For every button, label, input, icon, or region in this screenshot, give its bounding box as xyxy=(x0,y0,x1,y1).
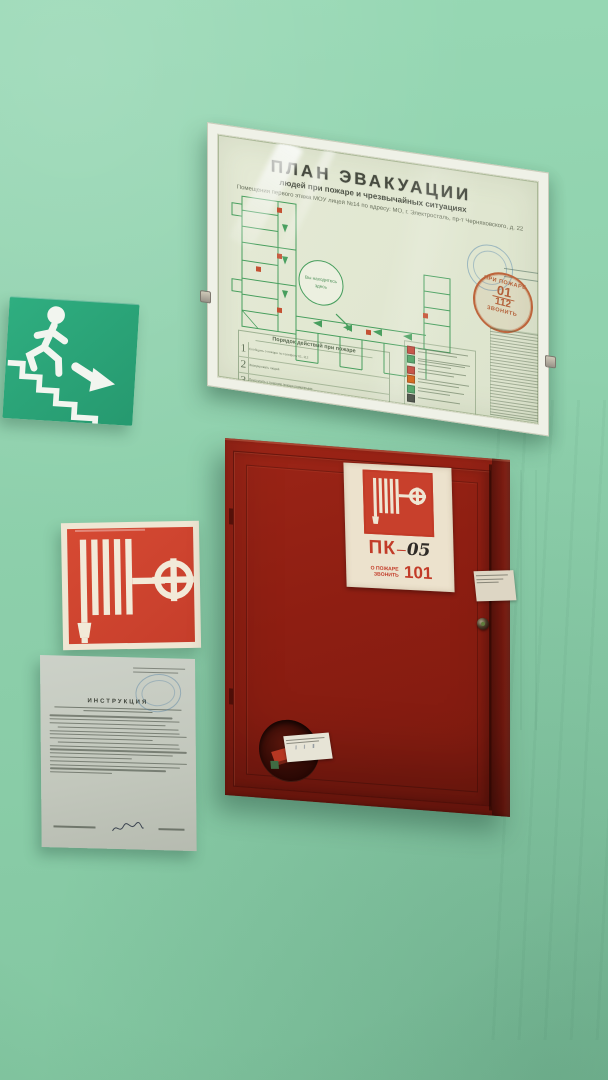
cabinet-hinge xyxy=(229,688,233,704)
pk-designation: ПК – 05 xyxy=(350,536,449,563)
direction-symbol-icon xyxy=(407,384,415,393)
phone-symbol-icon xyxy=(407,375,415,384)
handwritten-signature xyxy=(110,821,144,836)
cabinet-hinge xyxy=(229,508,233,524)
wall-drips xyxy=(514,470,544,730)
plan-notes-block xyxy=(490,327,538,423)
paper-seal xyxy=(474,570,517,601)
row-number: 3 xyxy=(239,373,249,389)
inspection-tag xyxy=(283,733,333,763)
you-are-here-circle: Вы находитесь здесь xyxy=(299,258,343,308)
fire-hose-reel-icon xyxy=(67,527,195,644)
pk-phone-number: 101 xyxy=(404,563,433,584)
evacuation-plan-board: ПЛАН ЭВАКУАЦИИ людей при пожаре и чрезвы… xyxy=(207,122,549,437)
fire-hose-cabinet: ПК – 05 О ПОЖАРЕ ЗВОНИТЬ 101 xyxy=(225,438,510,817)
hose-symbol-icon xyxy=(407,365,415,374)
cabinet-lock xyxy=(477,617,489,630)
exit-down-stairs-sign xyxy=(2,296,139,426)
document-body xyxy=(50,715,188,777)
text-line xyxy=(477,582,499,584)
photo-canvas: ПЛАН ЭВАКУАЦИИ людей при пожаре и чрезвы… xyxy=(0,0,608,1080)
plan-corner-mark xyxy=(226,382,234,391)
text-line xyxy=(476,575,508,577)
signature-caption xyxy=(53,826,95,828)
signature-date xyxy=(158,829,184,831)
fire-hose-sign xyxy=(61,521,201,650)
down-right-arrow-icon xyxy=(74,367,116,393)
text-line xyxy=(476,578,503,580)
exit-sign-pictogram xyxy=(2,297,139,426)
frame-clip-right xyxy=(545,355,556,369)
alarm-symbol-icon xyxy=(407,394,415,403)
row-number: 2 xyxy=(239,357,249,373)
instruction-document: ИНСТРУКЦИЯ xyxy=(40,655,197,851)
pk-prefix: ПК xyxy=(368,537,396,560)
tag-signature xyxy=(287,743,329,750)
exit-symbol-icon xyxy=(407,355,415,364)
pk-dash: – xyxy=(397,541,406,559)
running-person-down-stairs-icon xyxy=(29,305,67,374)
pk-number: 05 xyxy=(407,540,431,561)
fire-hose-sign-face xyxy=(67,527,195,644)
row-number: 1 xyxy=(239,341,249,357)
extinguisher-symbol-icon xyxy=(407,345,415,354)
evacuation-plan-sheet: ПЛАН ЭВАКУАЦИИ людей при пожаре и чрезвы… xyxy=(218,135,538,424)
symbols-legend xyxy=(404,340,476,417)
hose-pictogram-icon xyxy=(363,470,435,538)
pk-05-label: ПК – 05 О ПОЖАРЕ ЗВОНИТЬ 101 xyxy=(343,463,454,593)
cabinet-side-frame xyxy=(492,459,510,817)
frame-clip-left xyxy=(200,290,211,304)
pk-call-block: О ПОЖАРЕ ЗВОНИТЬ 101 xyxy=(351,560,449,585)
document-signature-row xyxy=(53,819,184,836)
